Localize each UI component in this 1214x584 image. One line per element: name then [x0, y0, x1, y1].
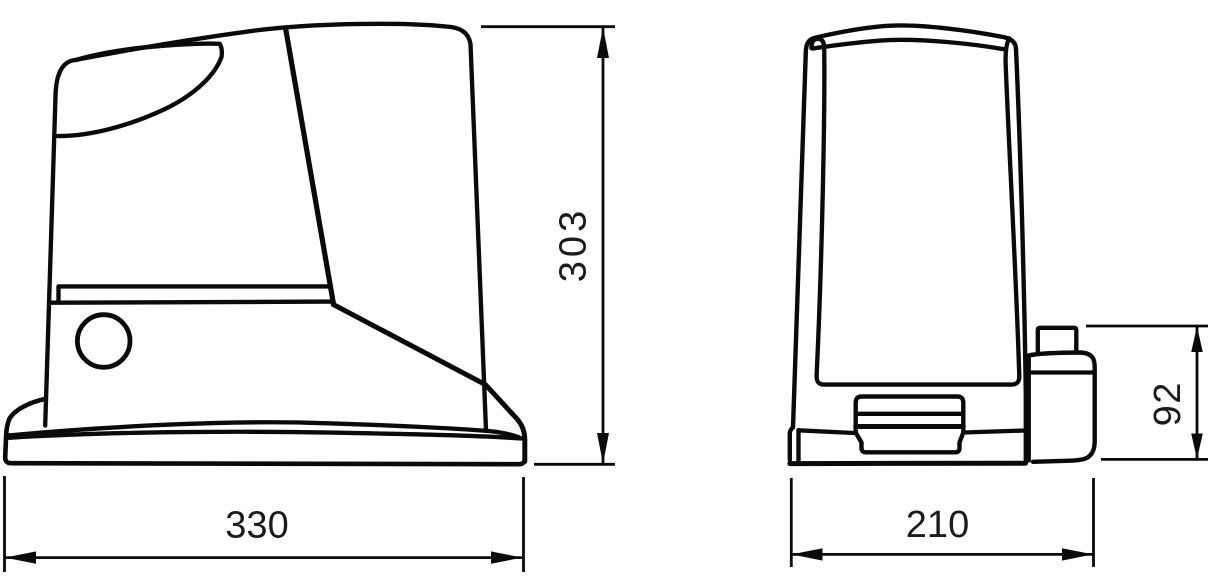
svg-text:210: 210 [906, 504, 969, 546]
svg-text:330: 330 [225, 505, 288, 547]
svg-text:303: 303 [553, 207, 595, 282]
svg-text:92: 92 [1147, 381, 1189, 426]
